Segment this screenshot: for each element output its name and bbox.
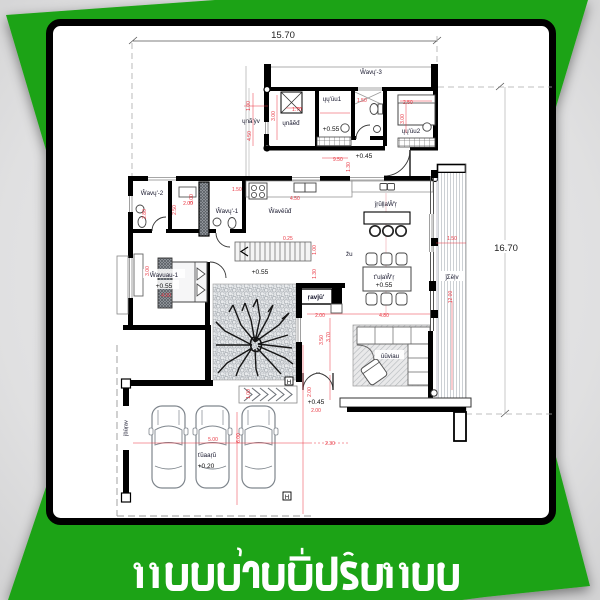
svg-text:ųų'ūu2: ųų'ūu2 — [402, 128, 421, 135]
svg-text:1.00: 1.00 — [312, 245, 318, 255]
svg-text:+0.55: +0.55 — [376, 282, 393, 289]
svg-text:0.25: 0.25 — [283, 236, 293, 242]
svg-text:+0.55: +0.55 — [323, 126, 340, 133]
svg-text:Ŵavų'-1: Ŵavų'-1 — [216, 208, 239, 215]
svg-text:ųnã'ýv: ųnã'ýv — [242, 118, 261, 125]
svg-text:2.80: 2.80 — [142, 209, 148, 219]
svg-text:ť'uļaŴ'ŗ: ť'uļaŴ'ŗ — [374, 274, 395, 281]
svg-text:3.00: 3.00 — [400, 114, 406, 124]
svg-text:Ŵavēũđ: Ŵavēũđ — [269, 208, 292, 215]
svg-text:2.30: 2.30 — [325, 441, 335, 447]
svg-text:ųų'ūu1: ųų'ūu1 — [323, 96, 342, 103]
svg-text:1.30: 1.30 — [312, 269, 318, 279]
svg-text:1.30: 1.30 — [346, 162, 352, 172]
svg-text:ųnãẽđ: ųnãẽđ — [282, 120, 300, 127]
svg-text:+0.45: +0.45 — [356, 153, 373, 160]
svg-text:ĵŭūŗav: ĵŭūŗav — [124, 420, 130, 437]
svg-text:+0.20: +0.20 — [198, 463, 215, 470]
svg-text:+0.55: +0.55 — [156, 283, 173, 290]
svg-text:H: H — [287, 380, 291, 386]
svg-text:+0.45: +0.45 — [308, 399, 325, 406]
svg-text:žu: žu — [346, 251, 353, 258]
svg-text:1.50: 1.50 — [357, 98, 367, 104]
svg-text:3.00: 3.00 — [189, 194, 195, 204]
svg-text:5.00: 5.00 — [208, 437, 218, 443]
svg-text:1.50: 1.50 — [447, 236, 457, 242]
svg-text:1.50: 1.50 — [232, 187, 242, 193]
svg-text:Ŵavuau-1: Ŵavuau-1 — [150, 272, 179, 279]
svg-text:4.00: 4.00 — [161, 293, 171, 299]
svg-text:Ŵavų'-3: Ŵavų'-3 — [360, 69, 382, 76]
svg-text:3.70: 3.70 — [326, 332, 332, 342]
svg-text:3.50: 3.50 — [319, 335, 325, 345]
svg-text:15.70: 15.70 — [271, 30, 295, 41]
svg-text:3.00: 3.00 — [271, 111, 277, 121]
svg-text:ūŭviau: ūŭviau — [381, 353, 400, 360]
svg-text:2.00: 2.00 — [311, 408, 321, 414]
svg-text:H: H — [285, 495, 289, 501]
svg-text:4.50: 4.50 — [247, 131, 253, 141]
svg-text:ťŭaaŗũ: ťŭaaŗũ — [198, 452, 217, 459]
svg-text:+0.55: +0.55 — [252, 269, 269, 276]
svg-text:1.00: 1.00 — [246, 101, 252, 111]
svg-text:12.00: 12.00 — [448, 291, 454, 304]
svg-text:4.50: 4.50 — [290, 196, 300, 202]
svg-text:ĵŗũļļaŴ'ŗ: ĵŗũļļaŴ'ŗ — [374, 201, 397, 208]
svg-text:Ŵavų'-2: Ŵavų'-2 — [141, 190, 164, 197]
svg-text:16.70: 16.70 — [494, 243, 518, 254]
svg-text:2.50: 2.50 — [172, 205, 178, 215]
svg-text:ĵƩēļv: ĵƩēļv — [444, 274, 459, 281]
svg-text:2.00: 2.00 — [307, 387, 313, 397]
svg-text:3.00: 3.00 — [145, 266, 151, 276]
svg-text:1.00: 1.00 — [246, 389, 252, 399]
svg-text:ŗavĵŭ': ŗavĵŭ' — [308, 294, 325, 301]
svg-text:6.00: 6.00 — [236, 433, 242, 443]
